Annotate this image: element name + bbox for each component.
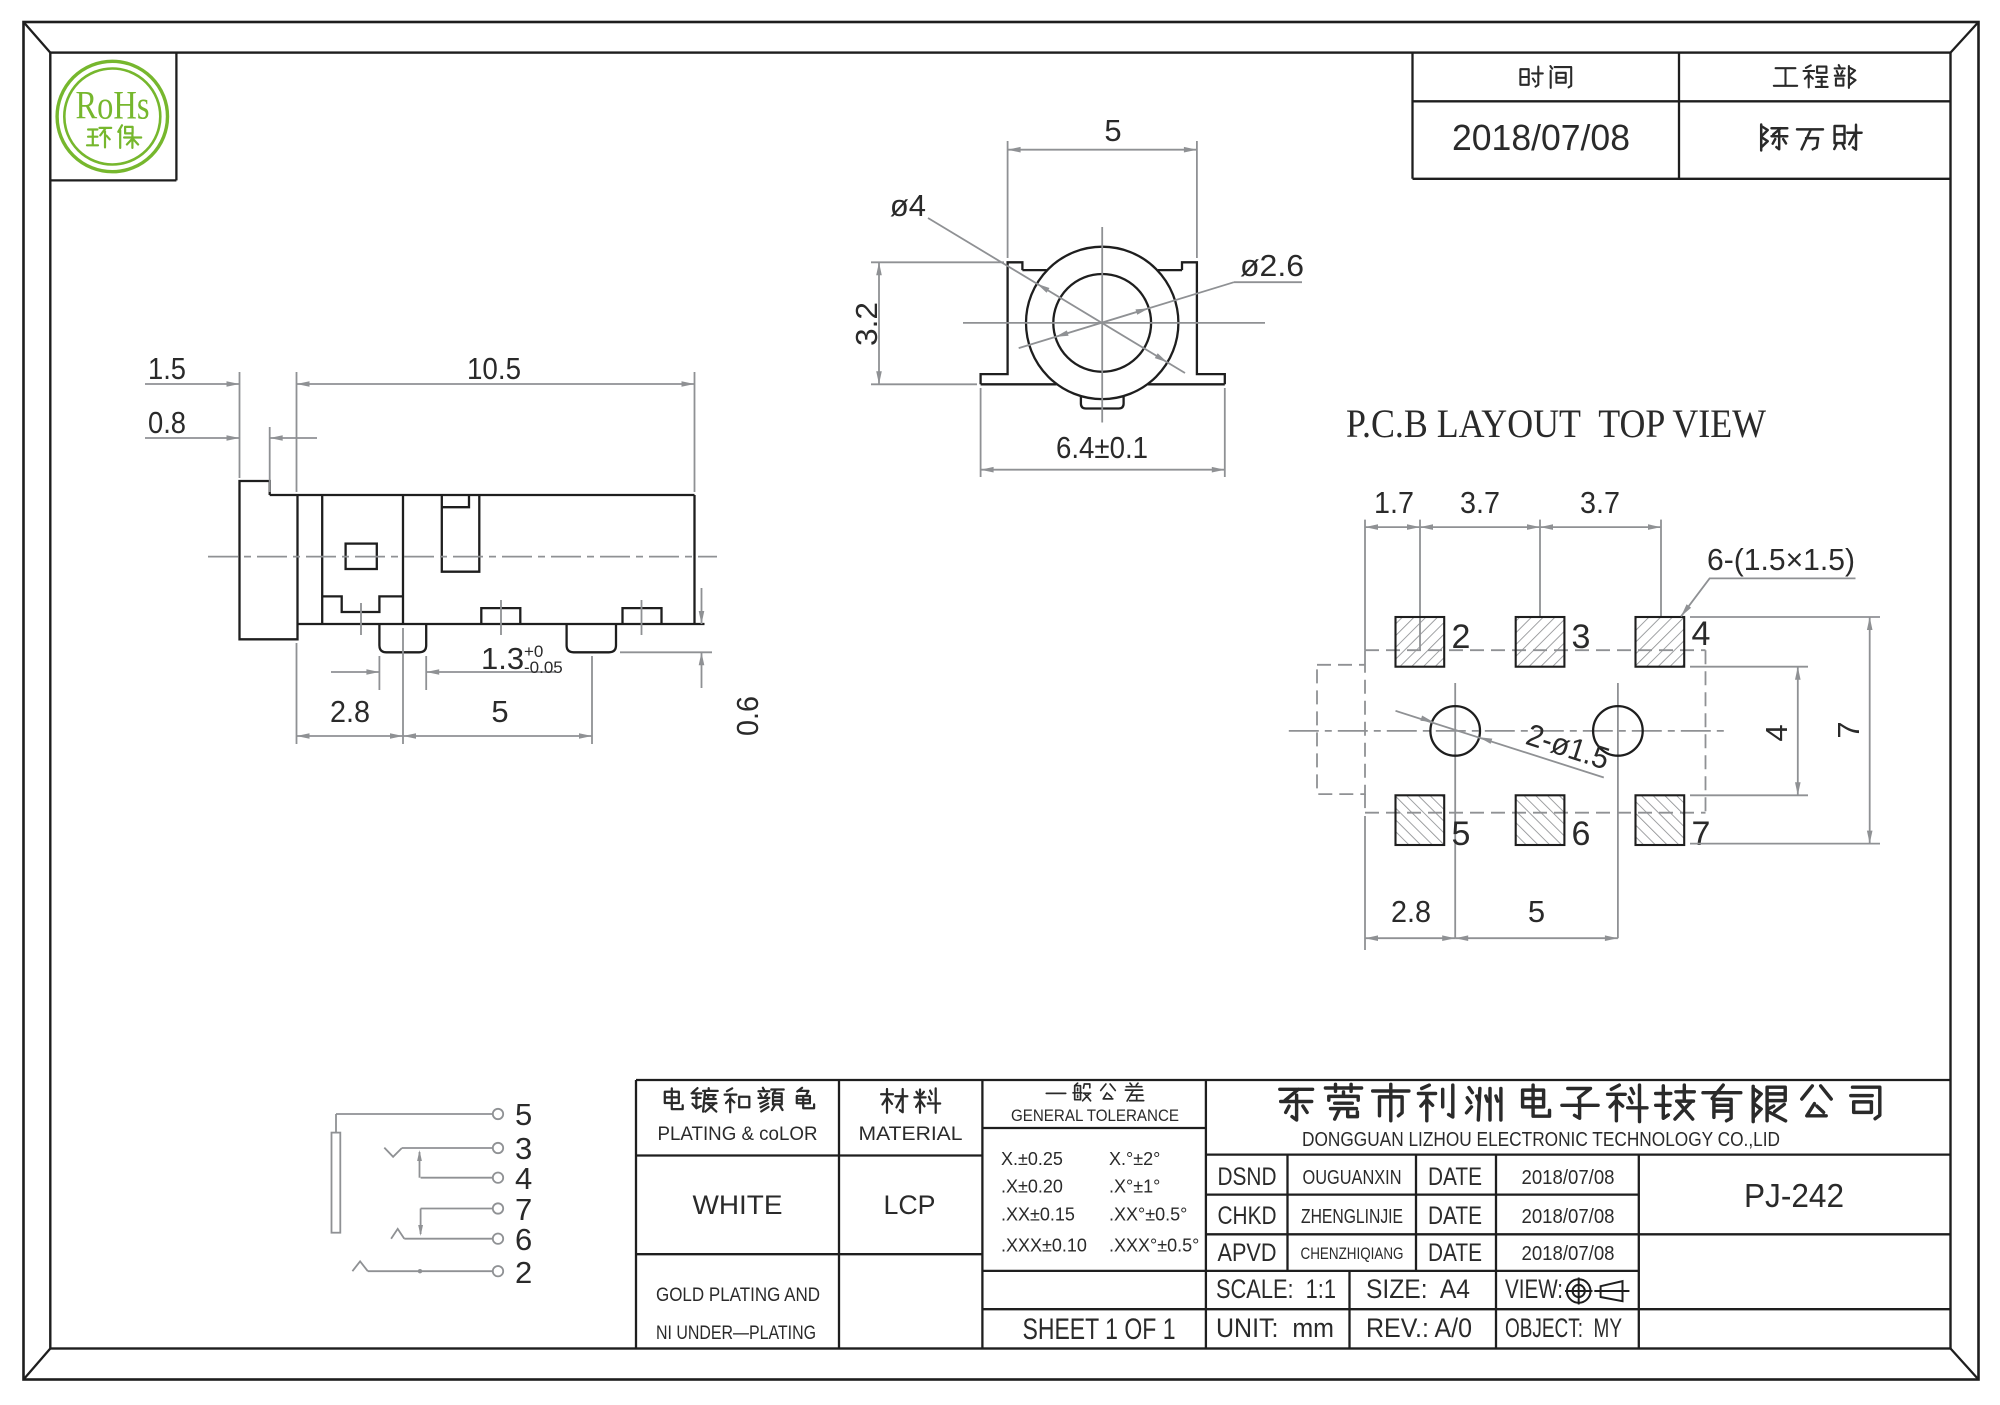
svg-text:2018/07/08: 2018/07/08	[1522, 1206, 1615, 1228]
svg-text:10.5: 10.5	[467, 351, 521, 386]
svg-text:OBJECT: MY: OBJECT: MY	[1505, 1313, 1622, 1343]
svg-text:6-(1.5×1.5): 6-(1.5×1.5)	[1707, 542, 1855, 577]
svg-text:DONGGUAN LIZHOU ELECTRONIC TEC: DONGGUAN LIZHOU ELECTRONIC TECHNOLOGY CO…	[1302, 1129, 1780, 1151]
svg-text:.XX±0.15: .XX±0.15	[1001, 1205, 1075, 1225]
svg-text:VIEW:: VIEW:	[1505, 1274, 1563, 1304]
svg-text:CHENZHIQIANG: CHENZHIQIANG	[1301, 1244, 1404, 1263]
svg-text:3.7: 3.7	[1580, 485, 1620, 520]
svg-text:3.2: 3.2	[849, 302, 884, 346]
svg-text:2.8: 2.8	[1391, 894, 1431, 929]
svg-text:DSND: DSND	[1218, 1163, 1277, 1191]
svg-text:.XXX±0.10: .XXX±0.10	[1001, 1236, 1087, 1256]
svg-text:GENERAL TOLERANCE: GENERAL TOLERANCE	[1011, 1106, 1179, 1125]
svg-text:2018/07/08: 2018/07/08	[1522, 1243, 1615, 1265]
svg-text:NI UNDER—PLATING: NI UNDER—PLATING	[656, 1323, 816, 1344]
svg-text:RoHs: RoHs	[76, 83, 150, 128]
svg-text:UNIT: mm: UNIT: mm	[1216, 1313, 1334, 1343]
svg-text:DATE: DATE	[1428, 1163, 1482, 1191]
svg-text:0.6: 0.6	[730, 696, 765, 736]
svg-text:6: 6	[1572, 815, 1591, 853]
svg-text:SHEET 1 OF 1: SHEET 1 OF 1	[1023, 1313, 1176, 1346]
svg-text:PJ-242: PJ-242	[1744, 1177, 1844, 1214]
svg-text:4: 4	[1692, 615, 1711, 653]
svg-text:5: 5	[1452, 815, 1471, 853]
svg-text:7: 7	[1692, 815, 1711, 853]
svg-text:P.C.B LAYOUT TOP VIEW: P.C.B LAYOUT TOP VIEW	[1346, 401, 1766, 446]
svg-text:DATE: DATE	[1428, 1239, 1482, 1267]
svg-text:5: 5	[1104, 113, 1121, 148]
svg-text:2: 2	[1452, 618, 1471, 656]
svg-text:PLATING & coLOR: PLATING & coLOR	[658, 1124, 818, 1145]
svg-text:X.°±2°: X.°±2°	[1109, 1149, 1160, 1169]
svg-text:X.±0.25: X.±0.25	[1001, 1149, 1063, 1169]
svg-text:2: 2	[515, 1255, 532, 1290]
svg-text:ø2.6: ø2.6	[1240, 248, 1304, 283]
svg-text:SIZE: A4: SIZE: A4	[1366, 1274, 1470, 1304]
svg-text:4: 4	[515, 1161, 532, 1196]
svg-text:1.7: 1.7	[1374, 485, 1414, 520]
svg-text:1.3: 1.3	[481, 641, 524, 676]
svg-text:-0.05: -0.05	[524, 658, 563, 677]
svg-text:MATERIAL: MATERIAL	[859, 1124, 963, 1145]
svg-text:6.4±0.1: 6.4±0.1	[1056, 430, 1148, 465]
svg-text:.XXX°±0.5°: .XXX°±0.5°	[1109, 1236, 1199, 1256]
svg-text:5: 5	[515, 1097, 532, 1132]
svg-text:3.7: 3.7	[1460, 485, 1500, 520]
svg-text:GOLD PLATING AND: GOLD PLATING AND	[656, 1285, 820, 1306]
svg-text:.XX°±0.5°: .XX°±0.5°	[1109, 1205, 1187, 1225]
svg-text:2018/07/08: 2018/07/08	[1452, 117, 1630, 158]
svg-text:1.5: 1.5	[148, 351, 186, 386]
svg-text:5: 5	[1528, 894, 1545, 929]
svg-text:5: 5	[491, 694, 508, 729]
svg-text:4: 4	[1759, 724, 1794, 741]
svg-text:REV.: A/0: REV.: A/0	[1366, 1313, 1472, 1343]
svg-text:CHKD: CHKD	[1218, 1202, 1277, 1230]
svg-text:OUGUANXIN: OUGUANXIN	[1303, 1167, 1402, 1189]
svg-text:APVD: APVD	[1218, 1239, 1277, 1267]
svg-text:3: 3	[1572, 618, 1591, 656]
svg-text:DATE: DATE	[1428, 1202, 1482, 1230]
svg-text:ZHENGLINJIE: ZHENGLINJIE	[1301, 1206, 1403, 1228]
svg-text:.X±0.20: .X±0.20	[1001, 1177, 1063, 1197]
svg-text:2018/07/08: 2018/07/08	[1522, 1167, 1615, 1189]
svg-text:2.8: 2.8	[330, 694, 370, 729]
svg-text:LCP: LCP	[884, 1190, 936, 1220]
svg-text:0.8: 0.8	[148, 405, 186, 440]
svg-text:7: 7	[1831, 721, 1866, 738]
svg-text:ø4: ø4	[890, 188, 926, 223]
svg-text:WHITE: WHITE	[693, 1190, 783, 1220]
svg-text:.X°±1°: .X°±1°	[1109, 1177, 1160, 1197]
svg-text:SCALE: 1:1: SCALE: 1:1	[1216, 1274, 1336, 1304]
svg-text:6: 6	[515, 1222, 532, 1257]
